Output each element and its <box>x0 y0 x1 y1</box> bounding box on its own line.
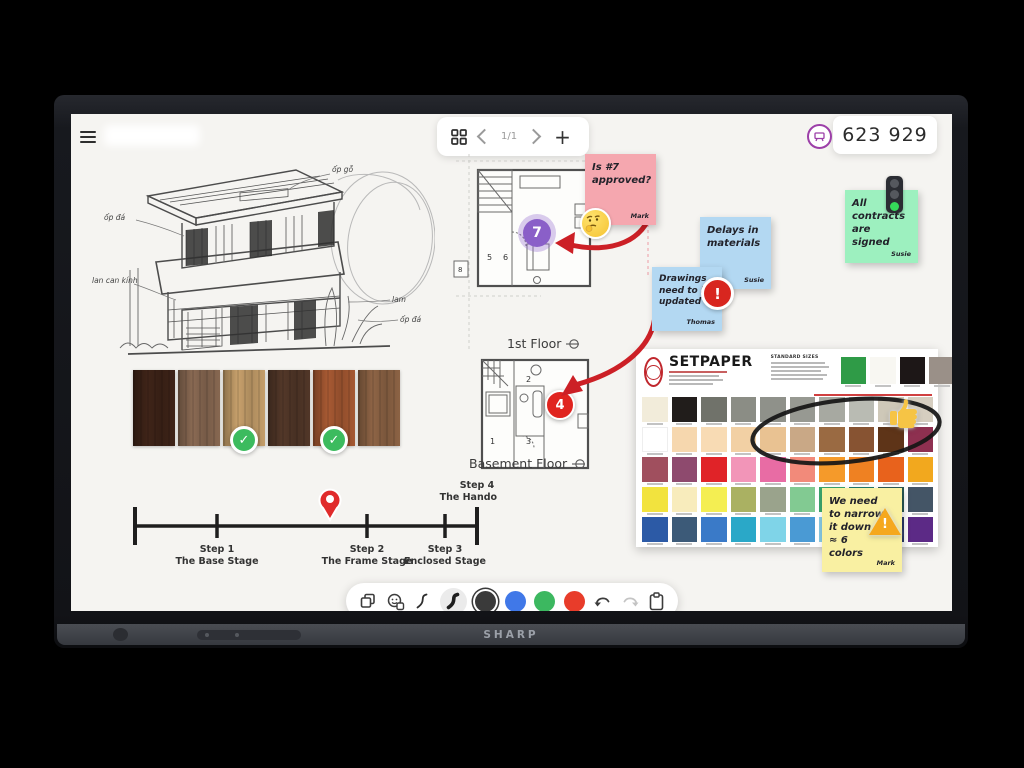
swatch-label <box>731 422 757 426</box>
paper-swatch <box>790 397 816 422</box>
swatch-label <box>849 452 875 456</box>
add-page-icon[interactable]: + <box>554 127 571 147</box>
swatch-label <box>878 482 904 486</box>
wood-sample[interactable] <box>178 370 220 446</box>
bold-pen-icon-selected[interactable] <box>440 588 467 612</box>
annex-room-box: 8 <box>453 260 469 278</box>
clipboard-icon[interactable] <box>648 592 665 611</box>
pen-color-red[interactable] <box>564 591 585 612</box>
paper-swatch <box>672 487 698 512</box>
display-chin: SHARP <box>57 624 965 645</box>
swatch-label <box>642 422 668 426</box>
sticky-note-green[interactable]: All contracts are signed Susie <box>845 190 918 263</box>
duplicate-icon[interactable] <box>359 592 377 610</box>
paper-swatch <box>701 457 727 482</box>
chart-sizes-block: STANDARD SIZES <box>771 355 829 380</box>
swatch-label <box>642 452 668 456</box>
plan-marker-4[interactable]: 4 <box>545 390 575 420</box>
svg-text:ốp đá: ốp đá <box>400 315 421 324</box>
sticky-author: Thomas <box>686 318 715 326</box>
sticker-emoji-tool-icon[interactable] <box>386 592 405 611</box>
swatch-label <box>731 452 757 456</box>
menu-icon[interactable] <box>80 131 96 143</box>
swatch-label <box>642 542 668 546</box>
svg-text:Step 1: Step 1 <box>200 544 235 555</box>
paper-swatch <box>908 487 934 512</box>
undo-icon[interactable] <box>593 593 612 609</box>
paper-swatch <box>841 357 867 384</box>
paper-swatch <box>731 457 757 482</box>
thumbs-up-emoji <box>887 397 921 433</box>
paper-swatch <box>731 427 757 452</box>
alert-sticker: ! <box>701 277 734 310</box>
setpaper-logo <box>644 357 663 387</box>
power-button[interactable] <box>113 628 128 641</box>
paper-swatch <box>701 517 727 542</box>
paper-swatch <box>760 427 786 452</box>
svg-text:2: 2 <box>526 375 531 384</box>
swatch-label <box>760 482 786 486</box>
current-position-pin <box>320 490 341 520</box>
paper-swatch <box>731 487 757 512</box>
svg-text:ốp đá: ốp đá <box>104 213 125 222</box>
sticky-author: Mark <box>631 212 649 220</box>
swatch-label <box>908 542 934 546</box>
sticky-author: Susie <box>744 276 764 284</box>
swatch-label <box>701 512 727 516</box>
svg-text:Step 3: Step 3 <box>428 544 463 555</box>
swatch-label <box>701 482 727 486</box>
swatch-label <box>642 482 668 486</box>
share-board-icon[interactable] <box>807 124 832 149</box>
paper-swatch <box>731 397 757 422</box>
house-sketch: ốp đá ốp gỗ lan can kính lam ốp đá <box>90 150 435 378</box>
swatch-label <box>672 482 698 486</box>
swatch-label <box>672 452 698 456</box>
swatch-label <box>760 542 786 546</box>
swatch-label <box>870 384 896 388</box>
paper-swatch <box>849 457 875 482</box>
paper-swatch <box>849 427 875 452</box>
paper-swatch <box>849 397 875 422</box>
chart-header-swatches <box>841 355 952 388</box>
paper-swatch <box>929 357 952 384</box>
plan-marker-7[interactable]: 7 <box>523 219 551 247</box>
wood-sample-row: ✓✓ <box>133 370 400 446</box>
swatch-label <box>878 452 904 456</box>
swatch-label <box>849 482 875 486</box>
paper-swatch <box>878 457 904 482</box>
svg-text:Step 4: Step 4 <box>460 480 495 491</box>
svg-text:6: 6 <box>503 253 508 262</box>
sticky-author: Mark <box>877 559 895 567</box>
swatch-label <box>760 422 786 426</box>
page-indicator: 1/1 <box>501 131 517 142</box>
wood-sample[interactable] <box>268 370 310 446</box>
swatch-label <box>790 422 816 426</box>
swatch-label <box>908 512 934 516</box>
swatch-label <box>642 512 668 516</box>
svg-text:1: 1 <box>490 437 495 446</box>
pen-color-black-selected[interactable] <box>475 591 496 612</box>
wood-sample[interactable] <box>358 370 400 446</box>
swatch-label <box>760 452 786 456</box>
paper-swatch <box>642 457 668 482</box>
ir-sensor-bar <box>197 630 301 640</box>
paper-swatch <box>760 517 786 542</box>
drawing-toolbar <box>346 583 678 611</box>
svg-text:lan can kính: lan can kính <box>92 276 138 285</box>
basement-floor-label: Basement Floor <box>469 456 587 471</box>
svg-text:lam: lam <box>392 295 406 304</box>
swatch-label <box>731 512 757 516</box>
swatch-label <box>900 384 926 388</box>
pen-color-green[interactable] <box>534 591 555 612</box>
paper-swatch <box>870 357 896 384</box>
section-mark-icon <box>566 338 581 350</box>
paper-swatch <box>819 397 845 422</box>
whiteboard-canvas[interactable]: 1/1 + 623 929 <box>71 114 952 611</box>
swatch-label <box>790 512 816 516</box>
paper-swatch <box>760 457 786 482</box>
svg-text:The Frame Stage: The Frame Stage <box>322 556 413 567</box>
svg-text:8: 8 <box>458 266 462 274</box>
paper-swatch <box>760 397 786 422</box>
svg-text:Step 2: Step 2 <box>350 544 385 555</box>
paper-swatch <box>908 517 934 542</box>
app-logo-blurred <box>104 125 200 146</box>
chart-brand: SETPAPER <box>669 355 753 369</box>
product-photo-background: { "device": {"brand_label": "SHARP"}, "s… <box>0 0 1024 768</box>
paper-swatch <box>908 457 934 482</box>
pen-color-blue[interactable] <box>505 591 526 612</box>
swatch-label <box>672 422 698 426</box>
warning-emoji: ! <box>869 508 901 535</box>
first-floor-label: 1st Floor <box>507 336 581 351</box>
swatch-label <box>841 384 867 388</box>
swatch-label <box>819 452 845 456</box>
paper-swatch <box>672 457 698 482</box>
paper-swatch <box>642 517 668 542</box>
brand-logo: SHARP <box>483 629 538 641</box>
thinking-face-emoji <box>580 208 611 239</box>
svg-text:ốp gỗ: ốp gỗ <box>332 165 353 174</box>
swatch-label <box>790 542 816 546</box>
paper-swatch <box>642 487 668 512</box>
wood-sample[interactable] <box>133 370 175 446</box>
paper-swatch <box>790 517 816 542</box>
swatch-label <box>701 422 727 426</box>
svg-text:The Base Stage: The Base Stage <box>175 556 258 567</box>
paper-swatch <box>731 517 757 542</box>
paper-swatch <box>819 457 845 482</box>
swatch-label <box>731 482 757 486</box>
paper-swatch <box>672 397 698 422</box>
next-page-icon[interactable] <box>526 129 542 145</box>
pages-grid-icon[interactable] <box>450 128 468 146</box>
approved-check-badge: ✓ <box>230 426 258 454</box>
paper-swatch <box>642 427 668 452</box>
svg-text:3: 3 <box>526 437 531 446</box>
paper-swatch <box>701 397 727 422</box>
project-timeline: Step 1 The Base Stage Step 2 The Frame S… <box>125 476 497 570</box>
swatch-label <box>929 384 952 388</box>
svg-text:The Handover: The Handover <box>440 492 497 503</box>
svg-text:5: 5 <box>487 253 492 262</box>
paper-swatch <box>701 487 727 512</box>
swatch-label <box>701 452 727 456</box>
approved-check-badge: ✓ <box>320 426 348 454</box>
paper-swatch <box>672 427 698 452</box>
swatch-label <box>819 422 845 426</box>
swatch-label <box>908 482 934 486</box>
paper-swatch <box>672 517 698 542</box>
paper-swatch <box>900 357 926 384</box>
paper-swatch <box>790 427 816 452</box>
wood-sample[interactable]: ✓ <box>313 370 355 446</box>
paper-swatch <box>819 427 845 452</box>
swatch-label <box>908 452 934 456</box>
session-code: 623 929 <box>842 124 928 146</box>
redo-icon-disabled[interactable] <box>621 593 640 609</box>
paper-swatch <box>642 397 668 422</box>
session-code-card: 623 929 <box>833 116 937 154</box>
section-mark-icon <box>572 458 587 470</box>
swatch-label <box>731 542 757 546</box>
traffic-light-emoji <box>886 176 903 213</box>
swatch-label <box>849 422 875 426</box>
chart-stock-note <box>814 394 932 396</box>
swatch-label <box>672 542 698 546</box>
swatch-label <box>760 512 786 516</box>
paper-swatch <box>760 487 786 512</box>
paper-swatch <box>701 427 727 452</box>
wood-sample[interactable]: ✓ <box>223 370 265 446</box>
prev-page-icon[interactable] <box>477 129 493 145</box>
svg-text:Enclosed Stage: Enclosed Stage <box>404 556 486 567</box>
paper-swatch <box>790 457 816 482</box>
paper-swatch <box>790 487 816 512</box>
swatch-label <box>701 542 727 546</box>
swatch-label <box>672 512 698 516</box>
thin-pen-icon[interactable] <box>413 592 431 610</box>
swatch-label <box>819 482 845 486</box>
sticky-author: Susie <box>891 250 911 258</box>
swatch-label <box>790 452 816 456</box>
page-navigator: 1/1 + <box>437 117 589 156</box>
swatch-label <box>790 482 816 486</box>
